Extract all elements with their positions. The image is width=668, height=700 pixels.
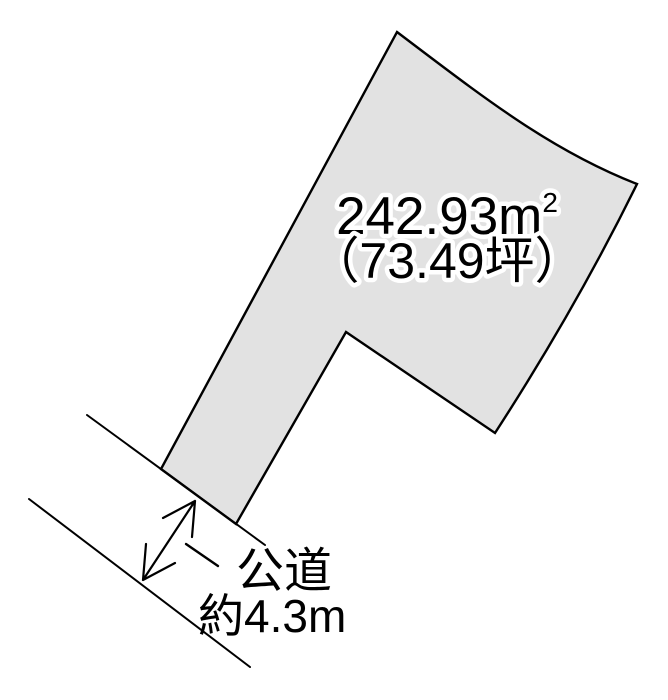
area-superscript: 2 <box>542 187 558 218</box>
road-label-leader-tick <box>186 544 218 566</box>
road-width-label: 約4.3m <box>198 590 346 642</box>
area-tsubo-label: （73.49坪） <box>309 233 584 289</box>
land-plot-diagram: 242.93m2 （73.49坪） 公道 約4.3m <box>0 0 668 700</box>
road-width-arrow <box>143 501 195 580</box>
land-plot-svg: 242.93m2 （73.49坪） 公道 約4.3m <box>0 0 668 700</box>
